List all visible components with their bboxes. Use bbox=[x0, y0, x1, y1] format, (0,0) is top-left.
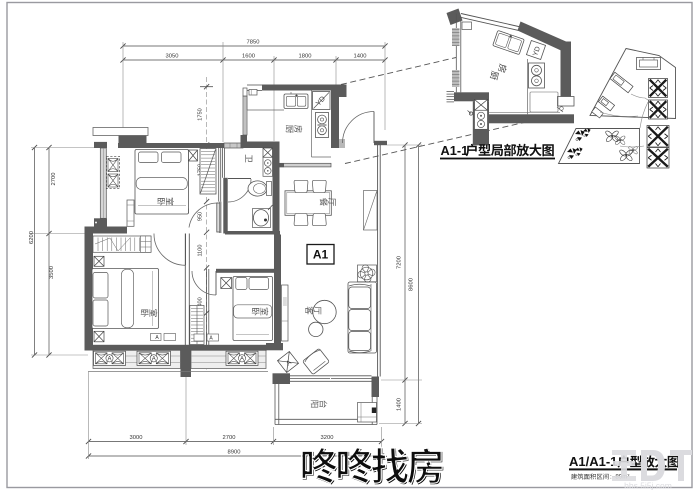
svg-text:A: A bbox=[152, 357, 156, 363]
svg-text:A1: A1 bbox=[313, 248, 329, 262]
svg-text:1400: 1400 bbox=[354, 54, 367, 60]
svg-text:1400: 1400 bbox=[397, 398, 403, 411]
svg-text:A1-1: A1-1 bbox=[441, 143, 469, 158]
svg-text:A1/A1-1: A1/A1-1 bbox=[569, 454, 617, 469]
svg-text:1800: 1800 bbox=[299, 54, 312, 60]
svg-text:1100: 1100 bbox=[198, 244, 204, 256]
svg-text:7200: 7200 bbox=[397, 256, 403, 269]
svg-text:8900: 8900 bbox=[228, 450, 241, 456]
svg-text:1600: 1600 bbox=[242, 54, 255, 60]
svg-text:7850: 7850 bbox=[247, 40, 260, 46]
svg-text:3000: 3000 bbox=[130, 435, 143, 441]
svg-text:bbs.5i5j.com: bbs.5i5j.com bbox=[624, 481, 672, 491]
svg-text:950: 950 bbox=[198, 212, 204, 221]
svg-text:6200: 6200 bbox=[29, 231, 35, 244]
svg-text:3200: 3200 bbox=[321, 435, 334, 441]
svg-text:A: A bbox=[107, 357, 111, 363]
svg-text:3050: 3050 bbox=[166, 54, 179, 60]
svg-text:8600: 8600 bbox=[409, 278, 415, 291]
svg-text:1750: 1750 bbox=[198, 108, 204, 120]
svg-text:3500: 3500 bbox=[49, 266, 55, 279]
svg-text:2700: 2700 bbox=[51, 173, 57, 186]
svg-text:2700: 2700 bbox=[223, 435, 236, 441]
svg-text:A: A bbox=[240, 357, 244, 363]
